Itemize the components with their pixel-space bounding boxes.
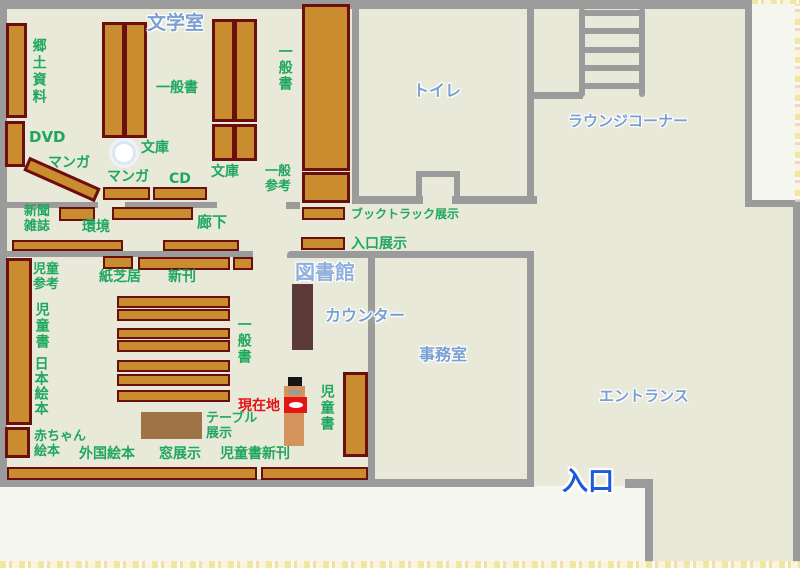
shelf-general-books-tall (302, 4, 350, 171)
wall (645, 481, 653, 562)
shelf-bunko (212, 19, 235, 122)
shelf-dvd (5, 121, 25, 167)
room-label-office: 事務室 (419, 341, 467, 365)
wall (286, 202, 300, 209)
label-bunko-pair: 文庫 (211, 165, 239, 181)
room-label-literature: 文学室 (147, 8, 204, 35)
shelf-general-row (117, 328, 230, 339)
shelf-bunko (234, 124, 257, 161)
stair-rung (579, 28, 645, 34)
stair-rung (579, 47, 645, 53)
label-local-materials: 郷土資料 (30, 38, 46, 106)
label-newspapers-magazines: 新聞 雑誌 (24, 205, 50, 234)
label-children-books-left: 児童書 (33, 302, 49, 350)
shelf-cd (153, 187, 207, 200)
label-children-books-right: 児童書 (318, 384, 334, 432)
toilet-door-alcove (416, 171, 460, 203)
label-table-display: テーブル 展示 (206, 412, 257, 441)
paper-edge (752, 0, 800, 4)
label-kamishibai: 紙芝居 (99, 270, 141, 286)
label-children-new-arrivals: 児童書新刊 (220, 447, 290, 463)
shelf-environment (12, 240, 123, 251)
shelf-baby-books (5, 427, 30, 458)
stair-rung (579, 65, 645, 71)
shelf-general-row (117, 390, 230, 402)
label-cd: CD (169, 172, 191, 188)
label-corridor: 廊下 (197, 214, 227, 231)
label-japanese-picture-books: 日本絵本 (32, 356, 48, 416)
stair-rung (579, 10, 645, 16)
current-location-marker (284, 413, 304, 446)
shelf-local-materials (6, 23, 27, 118)
shelf (112, 207, 193, 220)
shelf-children-new-arrivals (261, 467, 368, 480)
shelf-general-row (117, 360, 230, 372)
label-general-books-top: 一般書 (156, 81, 198, 97)
wall (452, 196, 537, 204)
room-label-entrance-door: 入口 (562, 461, 614, 498)
shelf-children-wall (6, 258, 32, 425)
label-general-books-tall: 一般書 (276, 44, 292, 92)
wall (0, 479, 533, 487)
shelf-bunko (212, 124, 235, 161)
shelf-booktruck-display (302, 207, 345, 220)
label-general-reference: 一般 参考 (265, 165, 291, 194)
label-entrance-display: 入口展示 (351, 237, 407, 253)
shelf-general-row (117, 296, 230, 308)
shelf-kamishibai (103, 256, 133, 269)
wall (530, 92, 583, 99)
label-window-display: 窓展示 (159, 447, 201, 463)
label-general-books-children: 一般書 (235, 317, 251, 365)
shelf-general-books (124, 22, 147, 138)
shelf-manga (103, 187, 150, 200)
shelf-window-display (7, 467, 257, 480)
shelf-general-reference (302, 172, 350, 203)
label-bunko-pillar: 文庫 (141, 141, 169, 157)
wall (793, 200, 800, 562)
shelf (233, 257, 253, 270)
wall (352, 196, 423, 204)
wall (745, 200, 800, 207)
current-location-marker (284, 386, 305, 397)
counter-desk (292, 284, 313, 350)
label-manga-diagonal: マンガ (48, 156, 90, 172)
shelf-children-books (343, 372, 368, 457)
current-location-marker (284, 397, 307, 413)
label-booktruck-display: ブックトラック展示 (351, 208, 459, 221)
shelf-entrance-display (301, 237, 345, 250)
room-label-toilet: トイレ (413, 77, 461, 101)
label-current-location: 現在地 (238, 395, 280, 415)
label-dvd: DVD (29, 129, 66, 146)
display-table (141, 412, 202, 439)
shelf-general-books (102, 22, 125, 138)
library-floor-map: 郷土資料 DVD マンガ 文庫 マンガ CD 一般書 文庫 一般書 一般 参考 … (0, 0, 800, 568)
wall (368, 251, 375, 487)
shelf-general-row (117, 340, 230, 352)
pillar (112, 141, 136, 165)
wall (352, 8, 359, 204)
wall (527, 251, 534, 487)
label-foreign-picture-books: 外国絵本 (79, 447, 135, 463)
wall (527, 8, 534, 204)
label-environment: 環境 (82, 220, 110, 236)
room-label-library: 図書館 (295, 256, 355, 285)
paper-edge (0, 561, 800, 568)
shelf-bunko (234, 19, 257, 122)
room-label-lounge: ラウンジコーナー (568, 110, 688, 131)
wall (745, 0, 752, 207)
room-label-counter: カウンター (325, 302, 405, 326)
room-label-entrance-hall: エントランス (599, 385, 689, 406)
label-manga-row: マンガ (107, 170, 149, 186)
floor-entrance-vestibule (649, 480, 797, 562)
label-children-reference: 児童 参考 (33, 263, 59, 292)
label-new-arrivals: 新刊 (168, 270, 196, 286)
stair-rung (579, 83, 645, 89)
shelf-corridor (163, 240, 239, 251)
shelf-general-row (117, 309, 230, 321)
shelf-general-row (117, 374, 230, 386)
paper-edge (795, 0, 800, 202)
